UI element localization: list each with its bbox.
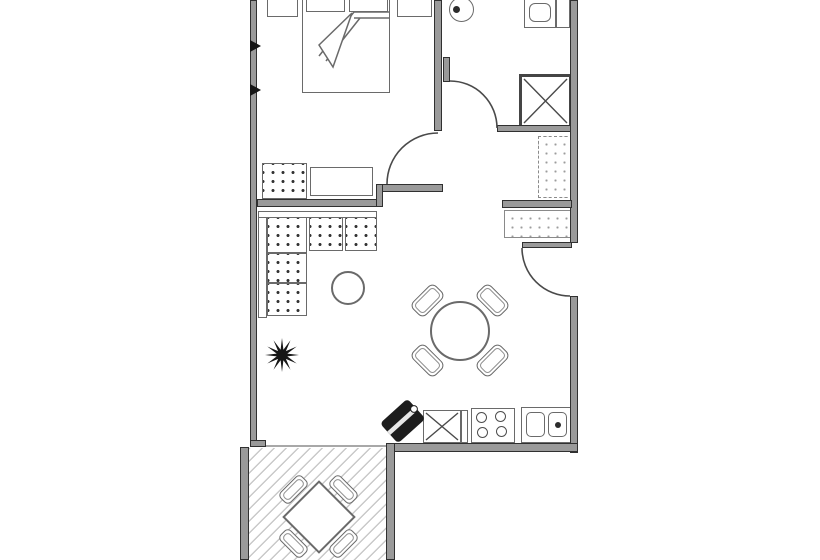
sideboard <box>504 210 573 238</box>
washbasin-tap <box>453 6 460 13</box>
wall-bathroom-bottom <box>497 125 578 132</box>
appliance-knob <box>411 406 418 413</box>
hob-burner <box>495 411 506 422</box>
shower <box>519 74 572 128</box>
pillow-left <box>306 0 345 12</box>
hob-burner <box>476 412 487 423</box>
floor-plan <box>0 0 820 560</box>
sofa-cushion <box>345 217 377 251</box>
sink-basin-left <box>526 412 545 437</box>
dining-table <box>430 301 490 361</box>
entrance-door-leaf <box>522 242 572 248</box>
sink-drain <box>555 422 561 428</box>
nightstand-right <box>397 0 432 17</box>
kitchen-divider <box>461 410 468 443</box>
wall-bedroom-bottom-left <box>257 199 383 207</box>
bathroom-door-arc <box>450 81 497 128</box>
double-bed <box>302 0 390 93</box>
wall-hall-living <box>502 200 572 208</box>
sofa-cushion <box>267 253 307 283</box>
plan-overlay <box>0 0 820 560</box>
coffee-table <box>331 271 365 305</box>
kitchen-cabinet-x <box>423 410 461 443</box>
wall-living-bottom-stub <box>250 440 266 447</box>
pillow-right <box>349 0 388 12</box>
sofa-back-left <box>258 211 267 318</box>
wall-terrace-left <box>240 447 249 560</box>
wall-right-lower <box>570 296 578 453</box>
nightstand-left <box>267 0 298 17</box>
kitchen-dark-appliance <box>380 399 426 444</box>
wall-bottom <box>388 443 578 452</box>
toilet-bowl <box>529 3 551 22</box>
entrance-door-arc <box>522 248 570 296</box>
plant-symbol <box>265 338 299 372</box>
sofa-cushion <box>267 283 307 316</box>
sofa-cushion <box>267 217 307 253</box>
wall-bedroom-bottom-right <box>376 184 443 192</box>
toilet-divider <box>555 0 557 27</box>
bedroom-bench <box>310 167 373 196</box>
terrace-glass-front <box>265 445 386 447</box>
hob-burner <box>477 427 488 438</box>
bathroom-door-leaf <box>443 57 450 82</box>
sofa-cushion <box>309 217 343 251</box>
wall-terrace-right <box>386 443 395 560</box>
wall-jog <box>376 184 383 207</box>
wardrobe <box>538 136 573 198</box>
wall-bedroom-bathroom <box>434 0 442 131</box>
wall-left <box>250 0 257 447</box>
bedroom-armchair <box>262 163 307 199</box>
bedroom-door-arc <box>387 133 438 184</box>
hob-burner <box>496 426 507 437</box>
